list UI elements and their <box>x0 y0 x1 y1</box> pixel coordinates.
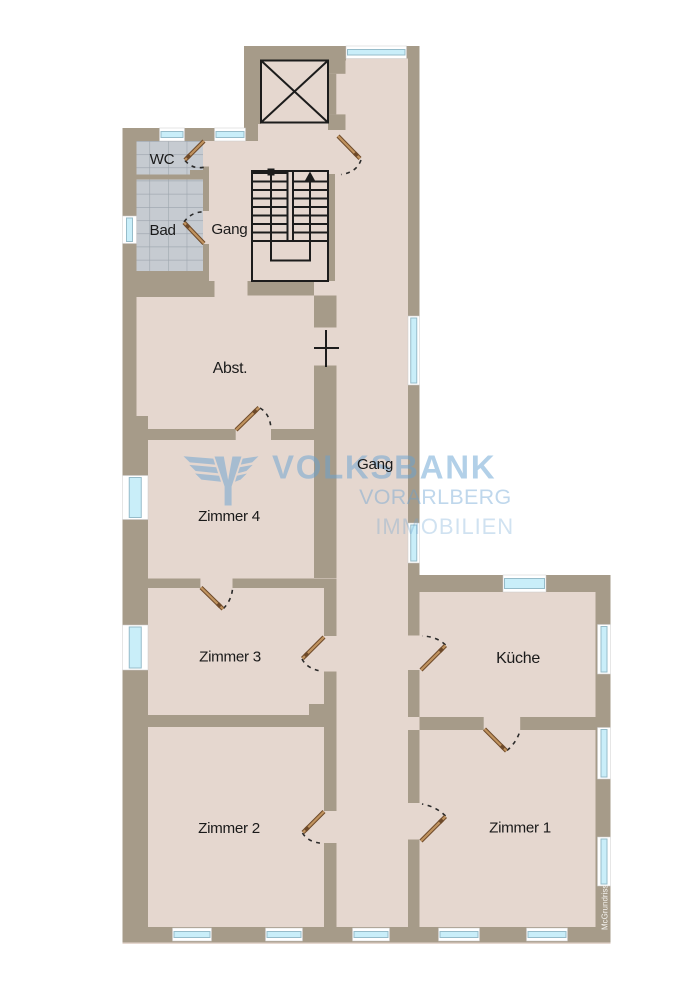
svg-text:Zimmer 1: Zimmer 1 <box>489 820 551 837</box>
svg-text:Abst.: Abst. <box>213 360 248 377</box>
svg-text:VORARLBERG: VORARLBERG <box>359 485 511 509</box>
svg-text:Zimmer 4: Zimmer 4 <box>198 508 260 525</box>
svg-text:WC: WC <box>150 151 175 168</box>
svg-text:Zimmer 3: Zimmer 3 <box>199 649 261 666</box>
svg-text:Küche: Küche <box>496 650 540 667</box>
svg-text:McGrundriss: McGrundriss <box>601 885 610 930</box>
svg-text:Bad: Bad <box>150 222 176 239</box>
svg-text:Gang: Gang <box>211 221 247 238</box>
svg-text:IMMOBILIEN: IMMOBILIEN <box>375 514 514 539</box>
svg-text:Zimmer 2: Zimmer 2 <box>198 820 260 837</box>
svg-text:Gang: Gang <box>357 456 393 473</box>
